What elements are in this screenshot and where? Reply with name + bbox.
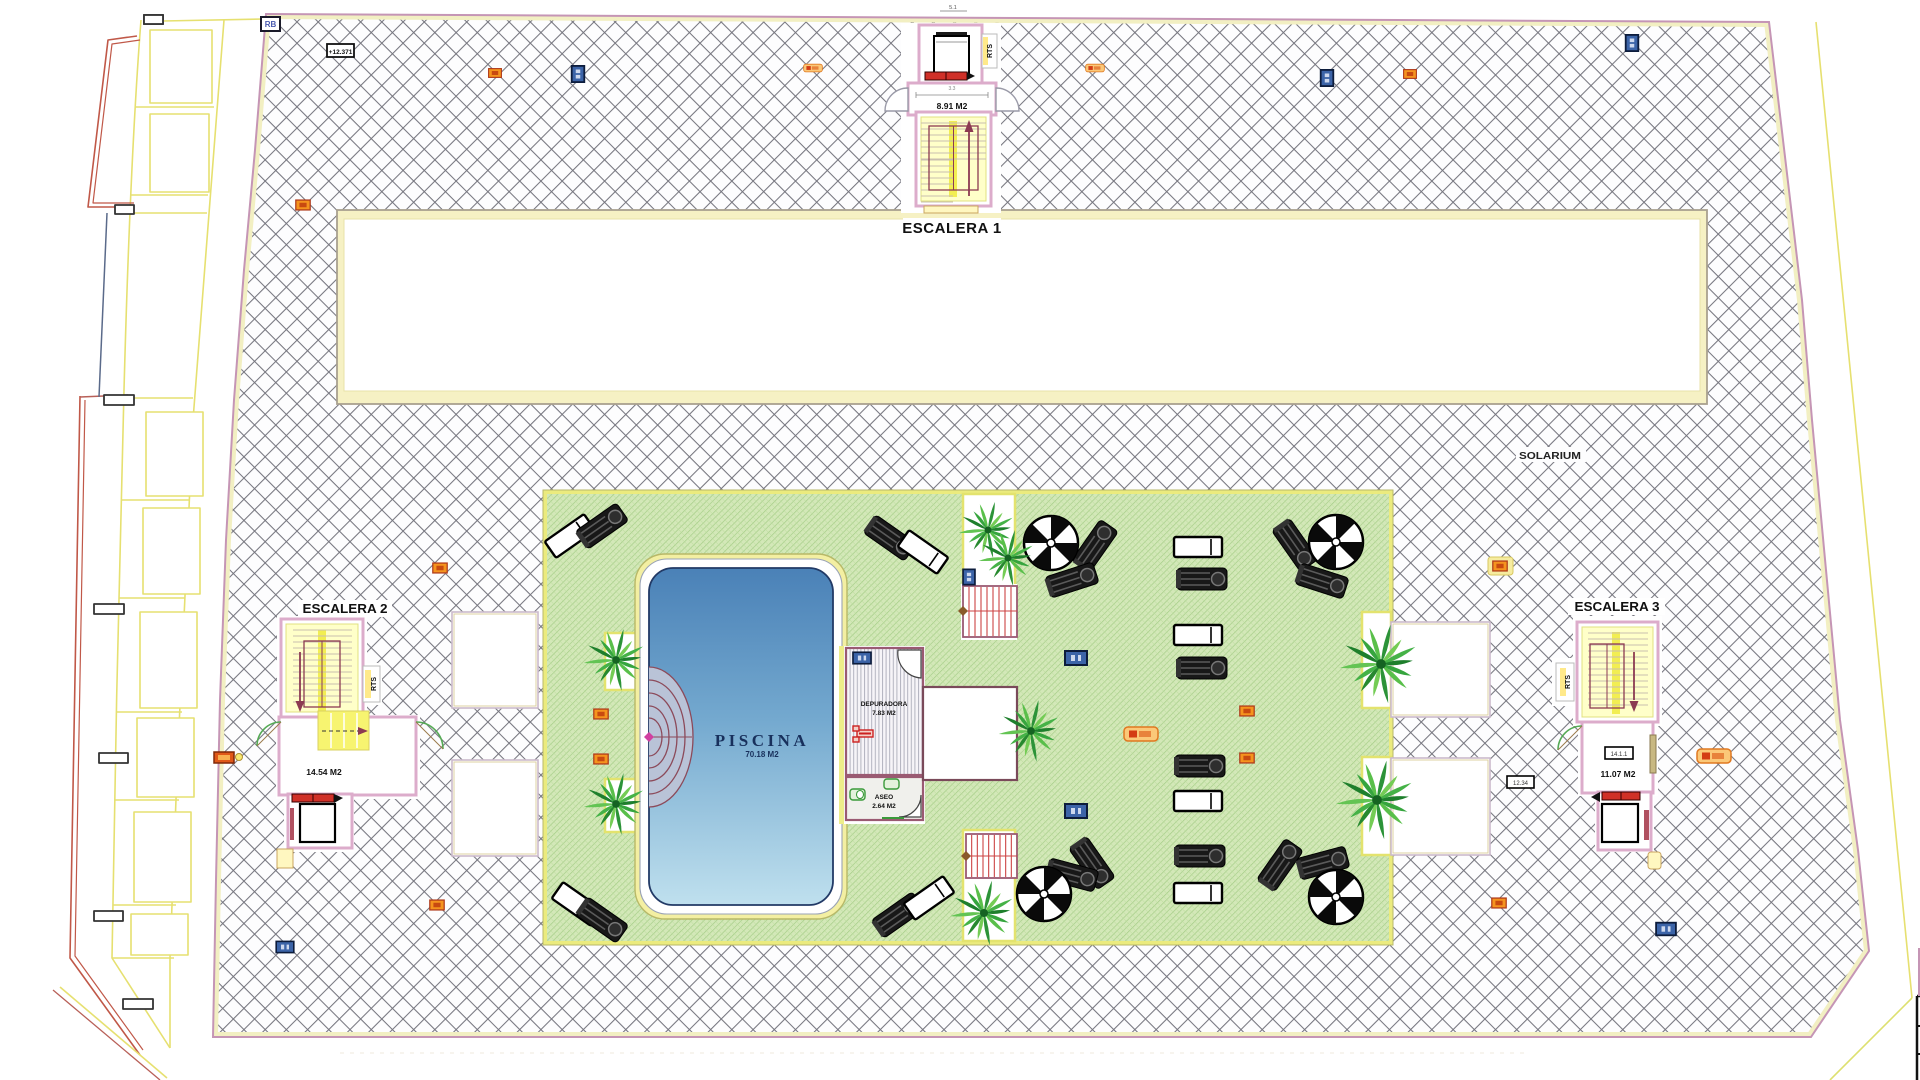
svg-text:5.1: 5.1 [949, 5, 957, 11]
svg-text:+12.371: +12.371 [329, 49, 353, 56]
svg-text:7.83 M2: 7.83 M2 [872, 710, 896, 717]
svg-text:ESCALERA 3: ESCALERA 3 [1575, 600, 1660, 614]
svg-text:3.3: 3.3 [949, 86, 956, 92]
svg-text:ESCALERA 1: ESCALERA 1 [902, 220, 1001, 237]
svg-text:14.54 M2: 14.54 M2 [306, 767, 342, 777]
svg-text:RTS: RTS [987, 44, 994, 58]
svg-text:SOLARIUM: SOLARIUM [1519, 450, 1581, 462]
svg-text:ASEO: ASEO [875, 794, 893, 801]
svg-text:12.34: 12.34 [1513, 781, 1529, 787]
svg-text:2.64 M2: 2.64 M2 [872, 803, 896, 810]
svg-text:ESCALERA 2: ESCALERA 2 [303, 602, 388, 616]
svg-text:11.07 M2: 11.07 M2 [1601, 769, 1636, 779]
svg-text:RTS: RTS [371, 677, 378, 691]
svg-text:RTS: RTS [1565, 675, 1572, 689]
svg-text:70.18 M2: 70.18 M2 [745, 750, 779, 759]
svg-text:8.91 M2: 8.91 M2 [937, 101, 968, 111]
svg-text:PISCINA: PISCINA [715, 731, 809, 750]
svg-text:DEPURADORA: DEPURADORA [861, 701, 908, 708]
svg-text:14.1.1: 14.1.1 [1611, 752, 1628, 758]
svg-text:RB: RB [265, 20, 277, 29]
